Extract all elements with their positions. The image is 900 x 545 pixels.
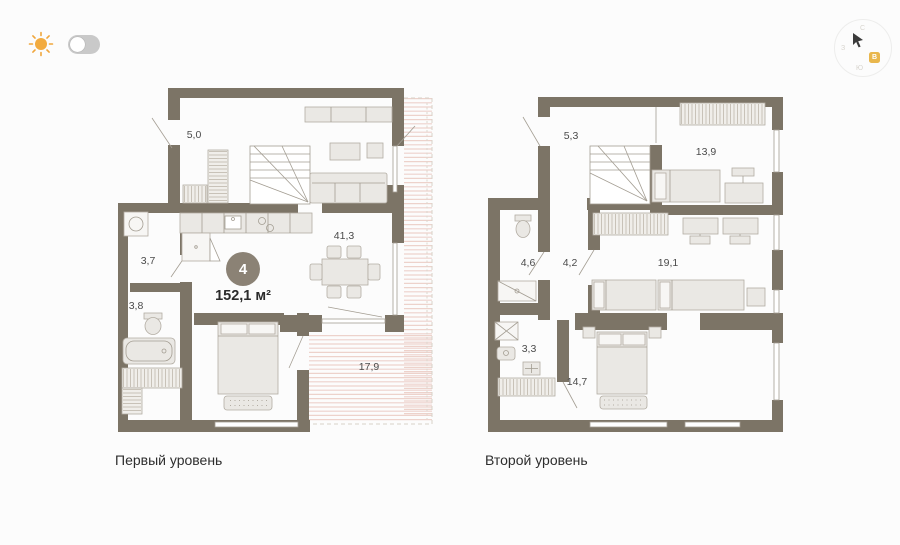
desk-with-monitor [723, 218, 758, 244]
staircase [250, 146, 310, 204]
desk-with-monitor [725, 168, 763, 203]
room-area-label: 19,1 [658, 257, 679, 269]
room-area-label: 5,3 [564, 130, 579, 142]
room-area-label: 3,7 [141, 255, 156, 267]
bed-single [658, 280, 744, 310]
compass-south-label: Ю [856, 65, 863, 72]
compass-east-badge: В [869, 52, 880, 63]
shadows-toggle[interactable] [68, 35, 100, 54]
room-area-label: 4,2 [563, 257, 578, 269]
compass-widget[interactable]: С З Ю В [834, 19, 892, 77]
cursor-arrow-icon [850, 31, 868, 49]
hall-wardrobe [183, 150, 228, 203]
toilet [144, 313, 162, 335]
bedroom-bench [600, 396, 647, 409]
room-area-label: 3,8 [129, 300, 144, 312]
staircase-level-2 [590, 146, 650, 204]
sink [497, 347, 515, 360]
toilet [515, 215, 531, 238]
room-area-label: 3,3 [522, 343, 537, 355]
level-1-caption: Первый уровень [115, 452, 222, 468]
coffee-tables [330, 143, 383, 160]
floor-plan-viewer: С З Ю В [0, 0, 900, 545]
bed-double [218, 322, 278, 394]
side-table [747, 288, 765, 306]
wardrobe [593, 213, 668, 235]
bathtub [123, 338, 175, 364]
floor-plan-level-1: 4 152,1 м² 5,0 3,7 3,8 41,3 17,9 [116, 85, 456, 435]
sun-icon [28, 31, 54, 57]
total-area: 152,1 м² [215, 288, 271, 304]
room-area-label: 41,3 [334, 230, 355, 242]
washing-machine [495, 322, 518, 340]
rooms-count: 4 [239, 261, 248, 278]
room-area-label: 14,7 [567, 376, 588, 388]
storage-shelving [498, 378, 555, 396]
bed-double [583, 327, 661, 394]
toolbar [28, 31, 100, 57]
room-area-label: 17,9 [359, 361, 380, 373]
apartment-summary-badge: 4 152,1 м² [215, 252, 271, 304]
room-area-label: 4,6 [521, 257, 536, 269]
desk-with-monitor [683, 218, 718, 244]
sofa [310, 173, 387, 203]
bed-single [592, 280, 656, 310]
washing-machine [124, 212, 148, 236]
compass-west-label: З [841, 45, 845, 52]
tv-console [305, 107, 392, 122]
storage-shelving [122, 368, 182, 414]
cabinet [523, 362, 540, 375]
floor-plan-level-2: 5,3 13,9 4,6 4,2 19,1 3,3 14,7 [480, 85, 800, 435]
bedroom-bench [224, 396, 272, 410]
wardrobe [680, 103, 765, 125]
dining-table [310, 246, 380, 298]
shower [498, 281, 536, 301]
room-area-label: 5,0 [187, 129, 202, 141]
shadows-toggle-knob[interactable] [70, 37, 85, 52]
level-2-caption: Второй уровень [485, 452, 588, 468]
bed-single [652, 170, 720, 202]
room-area-label: 13,9 [696, 146, 717, 158]
